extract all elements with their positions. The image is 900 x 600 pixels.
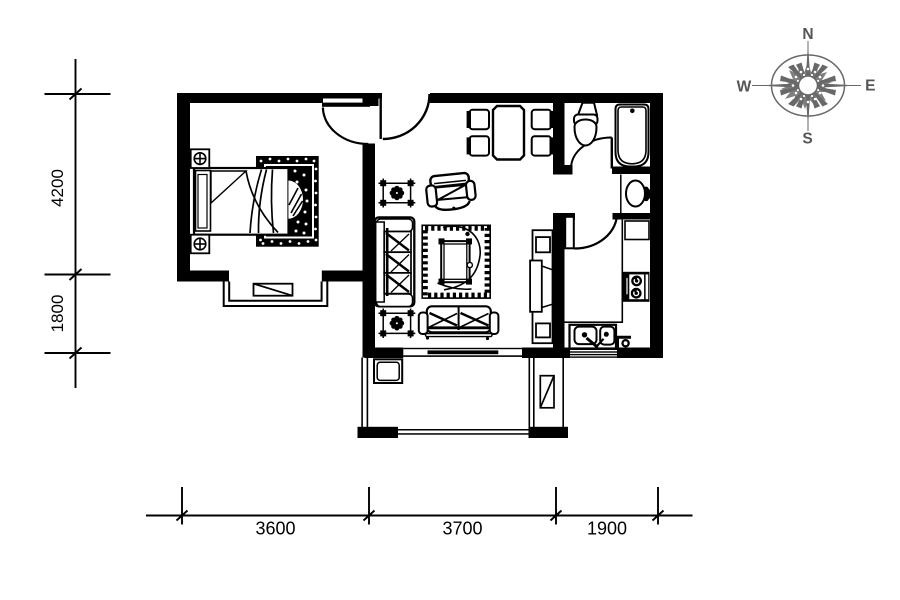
svg-text:3600: 3600 — [255, 519, 295, 539]
svg-text:3700: 3700 — [442, 519, 482, 539]
svg-text:S: S — [802, 131, 812, 148]
svg-text:4200: 4200 — [48, 169, 67, 207]
svg-text:1900: 1900 — [587, 519, 627, 539]
svg-text:1800: 1800 — [48, 295, 67, 333]
svg-text:E: E — [865, 78, 875, 95]
svg-text:N: N — [802, 26, 813, 43]
svg-text:W: W — [737, 79, 752, 96]
